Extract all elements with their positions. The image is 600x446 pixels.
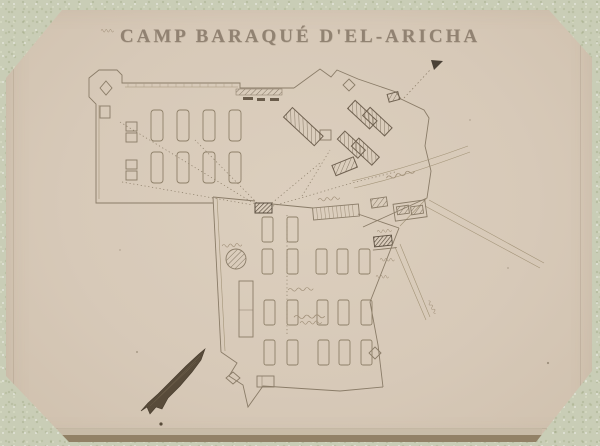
print-lower-edge-shadow: [55, 435, 545, 443]
paper-specks: [119, 119, 549, 364]
left-fort: [89, 70, 294, 205]
lower-camp: [213, 197, 399, 407]
plan-drawing: [0, 0, 600, 446]
mounted-photograph: CAMP BARAQUÉ D'EL-ARICHA: [0, 0, 600, 446]
roads: [352, 70, 544, 320]
upper-redoubt: [284, 69, 431, 227]
guard-post: [255, 203, 272, 213]
hatched-buildings: [284, 92, 400, 176]
print-lower-edge-highlight: [58, 428, 542, 435]
long-barracks: [313, 204, 360, 220]
well-circle: [226, 249, 246, 269]
lower-camp-tents: [262, 217, 372, 365]
north-arrow: [141, 349, 205, 426]
left-fort-tents: [151, 110, 241, 183]
direction-arrow: [431, 60, 443, 70]
